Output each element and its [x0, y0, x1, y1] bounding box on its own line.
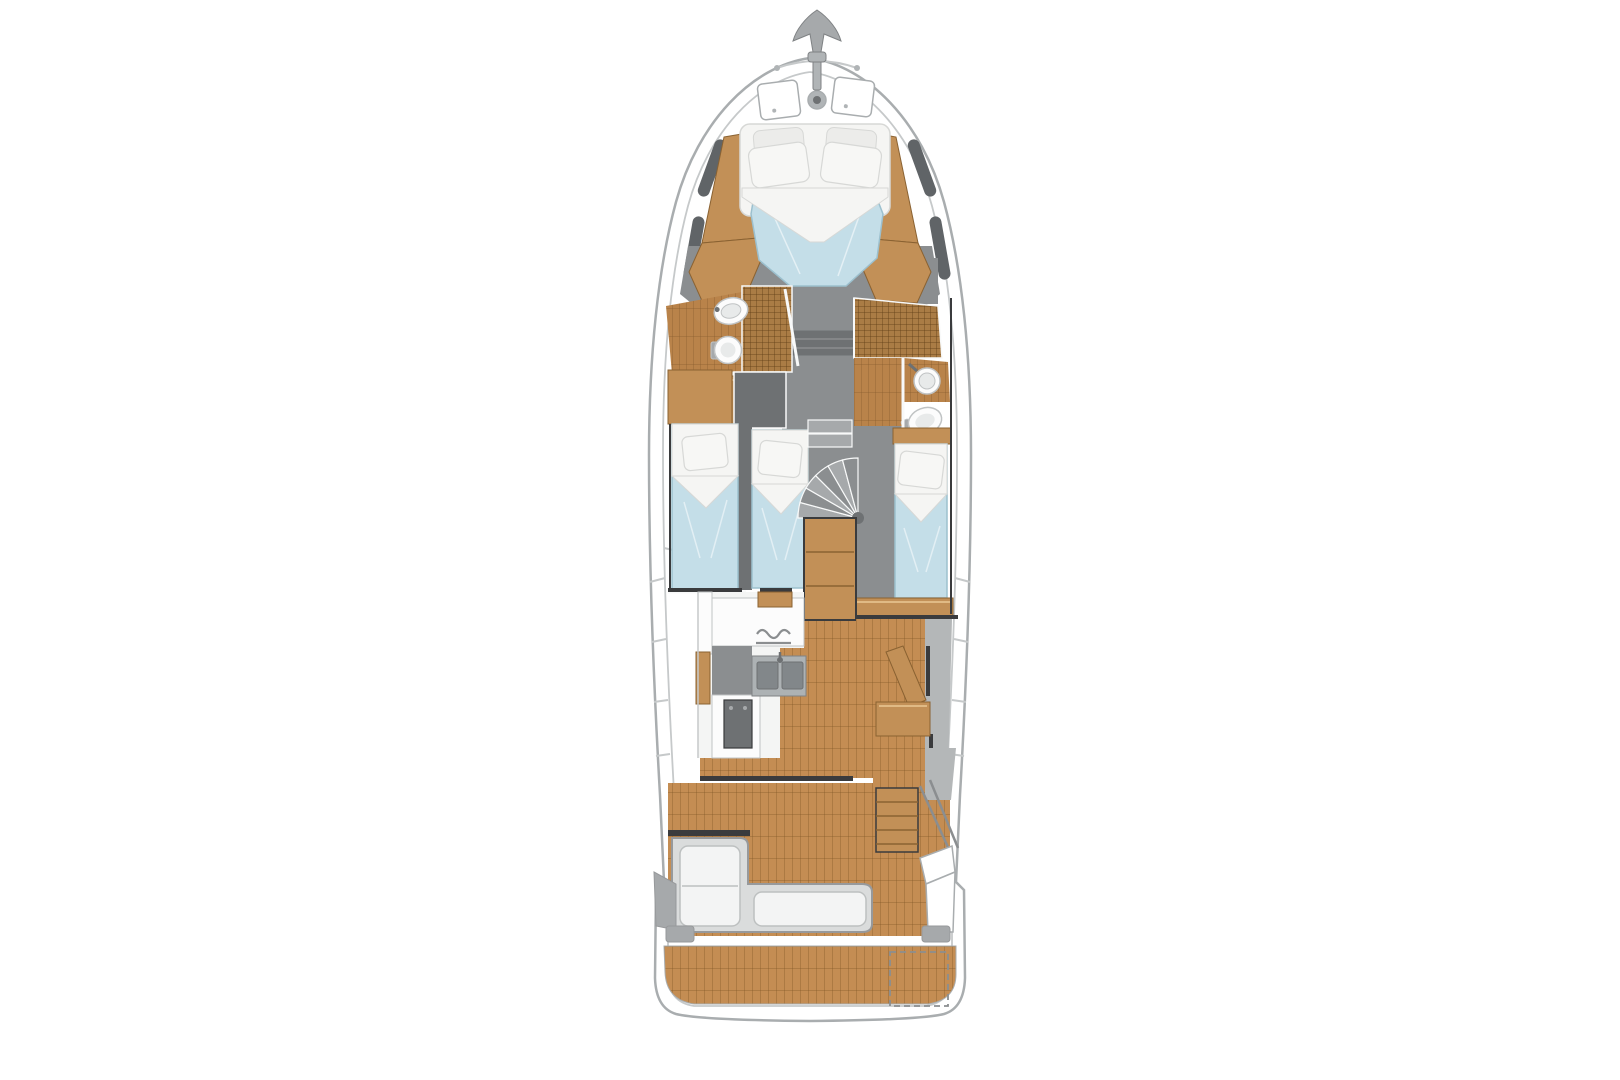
starboard-cabin-bulkhead [850, 615, 958, 619]
galley-fwd-wall [698, 592, 712, 654]
starboard-footboard [852, 598, 953, 616]
stair-tread [808, 420, 852, 433]
pillow [819, 141, 882, 189]
starboard-head-floor [854, 358, 904, 426]
v-berth-bed [740, 124, 890, 286]
galley-bulkhead [760, 588, 792, 592]
galley-stove [724, 700, 752, 748]
starboard-head [854, 298, 951, 441]
port-head-shower [742, 286, 792, 372]
twin-dresser [668, 370, 732, 424]
side-deck-starboard-cockpit [925, 748, 956, 800]
windlass-gypsy [813, 96, 821, 104]
twin-floor-strip [738, 424, 752, 590]
stair-tread [808, 434, 852, 447]
pulpit-base-starboard [854, 65, 860, 71]
galley-sink [752, 652, 806, 696]
twin-wardrobe [734, 372, 786, 428]
pillow [757, 440, 802, 478]
stair-landing [804, 518, 856, 620]
pillow [897, 450, 945, 489]
starboard-headboard [893, 428, 951, 444]
transom-cap-port [666, 926, 694, 942]
bench-cushion-aft [754, 892, 866, 926]
salon-window-frame [926, 646, 930, 696]
twin-cabin-bulkhead [668, 588, 742, 592]
yacht-floorplan-illustration [0, 0, 1620, 1080]
transom-cap-starboard [922, 926, 950, 942]
foredeck-hatch-starboard [831, 77, 875, 118]
bench-back-shadow [668, 830, 750, 836]
swim-platform-teak [664, 946, 956, 1004]
pulpit-base-port [774, 65, 780, 71]
starboard-head-shower [854, 298, 942, 358]
starboard-bed [895, 444, 947, 598]
foredeck-hatch-port [757, 80, 801, 121]
pillow [747, 141, 810, 189]
twin-bed-port [672, 424, 738, 590]
flybridge-stairs [876, 788, 918, 852]
galley-cabinet-top [758, 592, 792, 607]
pillow [681, 433, 728, 471]
yacht-floorplan-screenshot [0, 0, 1620, 1080]
swim-platform [664, 946, 956, 1006]
